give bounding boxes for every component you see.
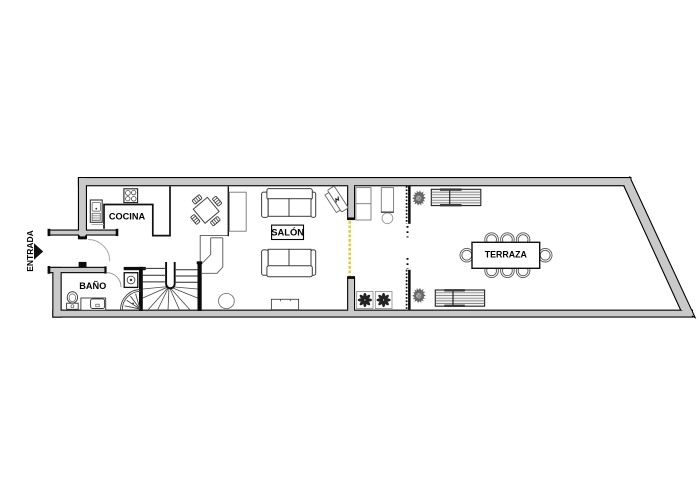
svg-text:COCINA: COCINA: [109, 211, 146, 221]
svg-text:TERRAZA: TERRAZA: [485, 249, 528, 259]
svg-text:ENTRADA: ENTRADA: [25, 230, 35, 272]
svg-text:BAÑO: BAÑO: [79, 281, 106, 291]
svg-text:SALÓN: SALÓN: [271, 227, 304, 238]
